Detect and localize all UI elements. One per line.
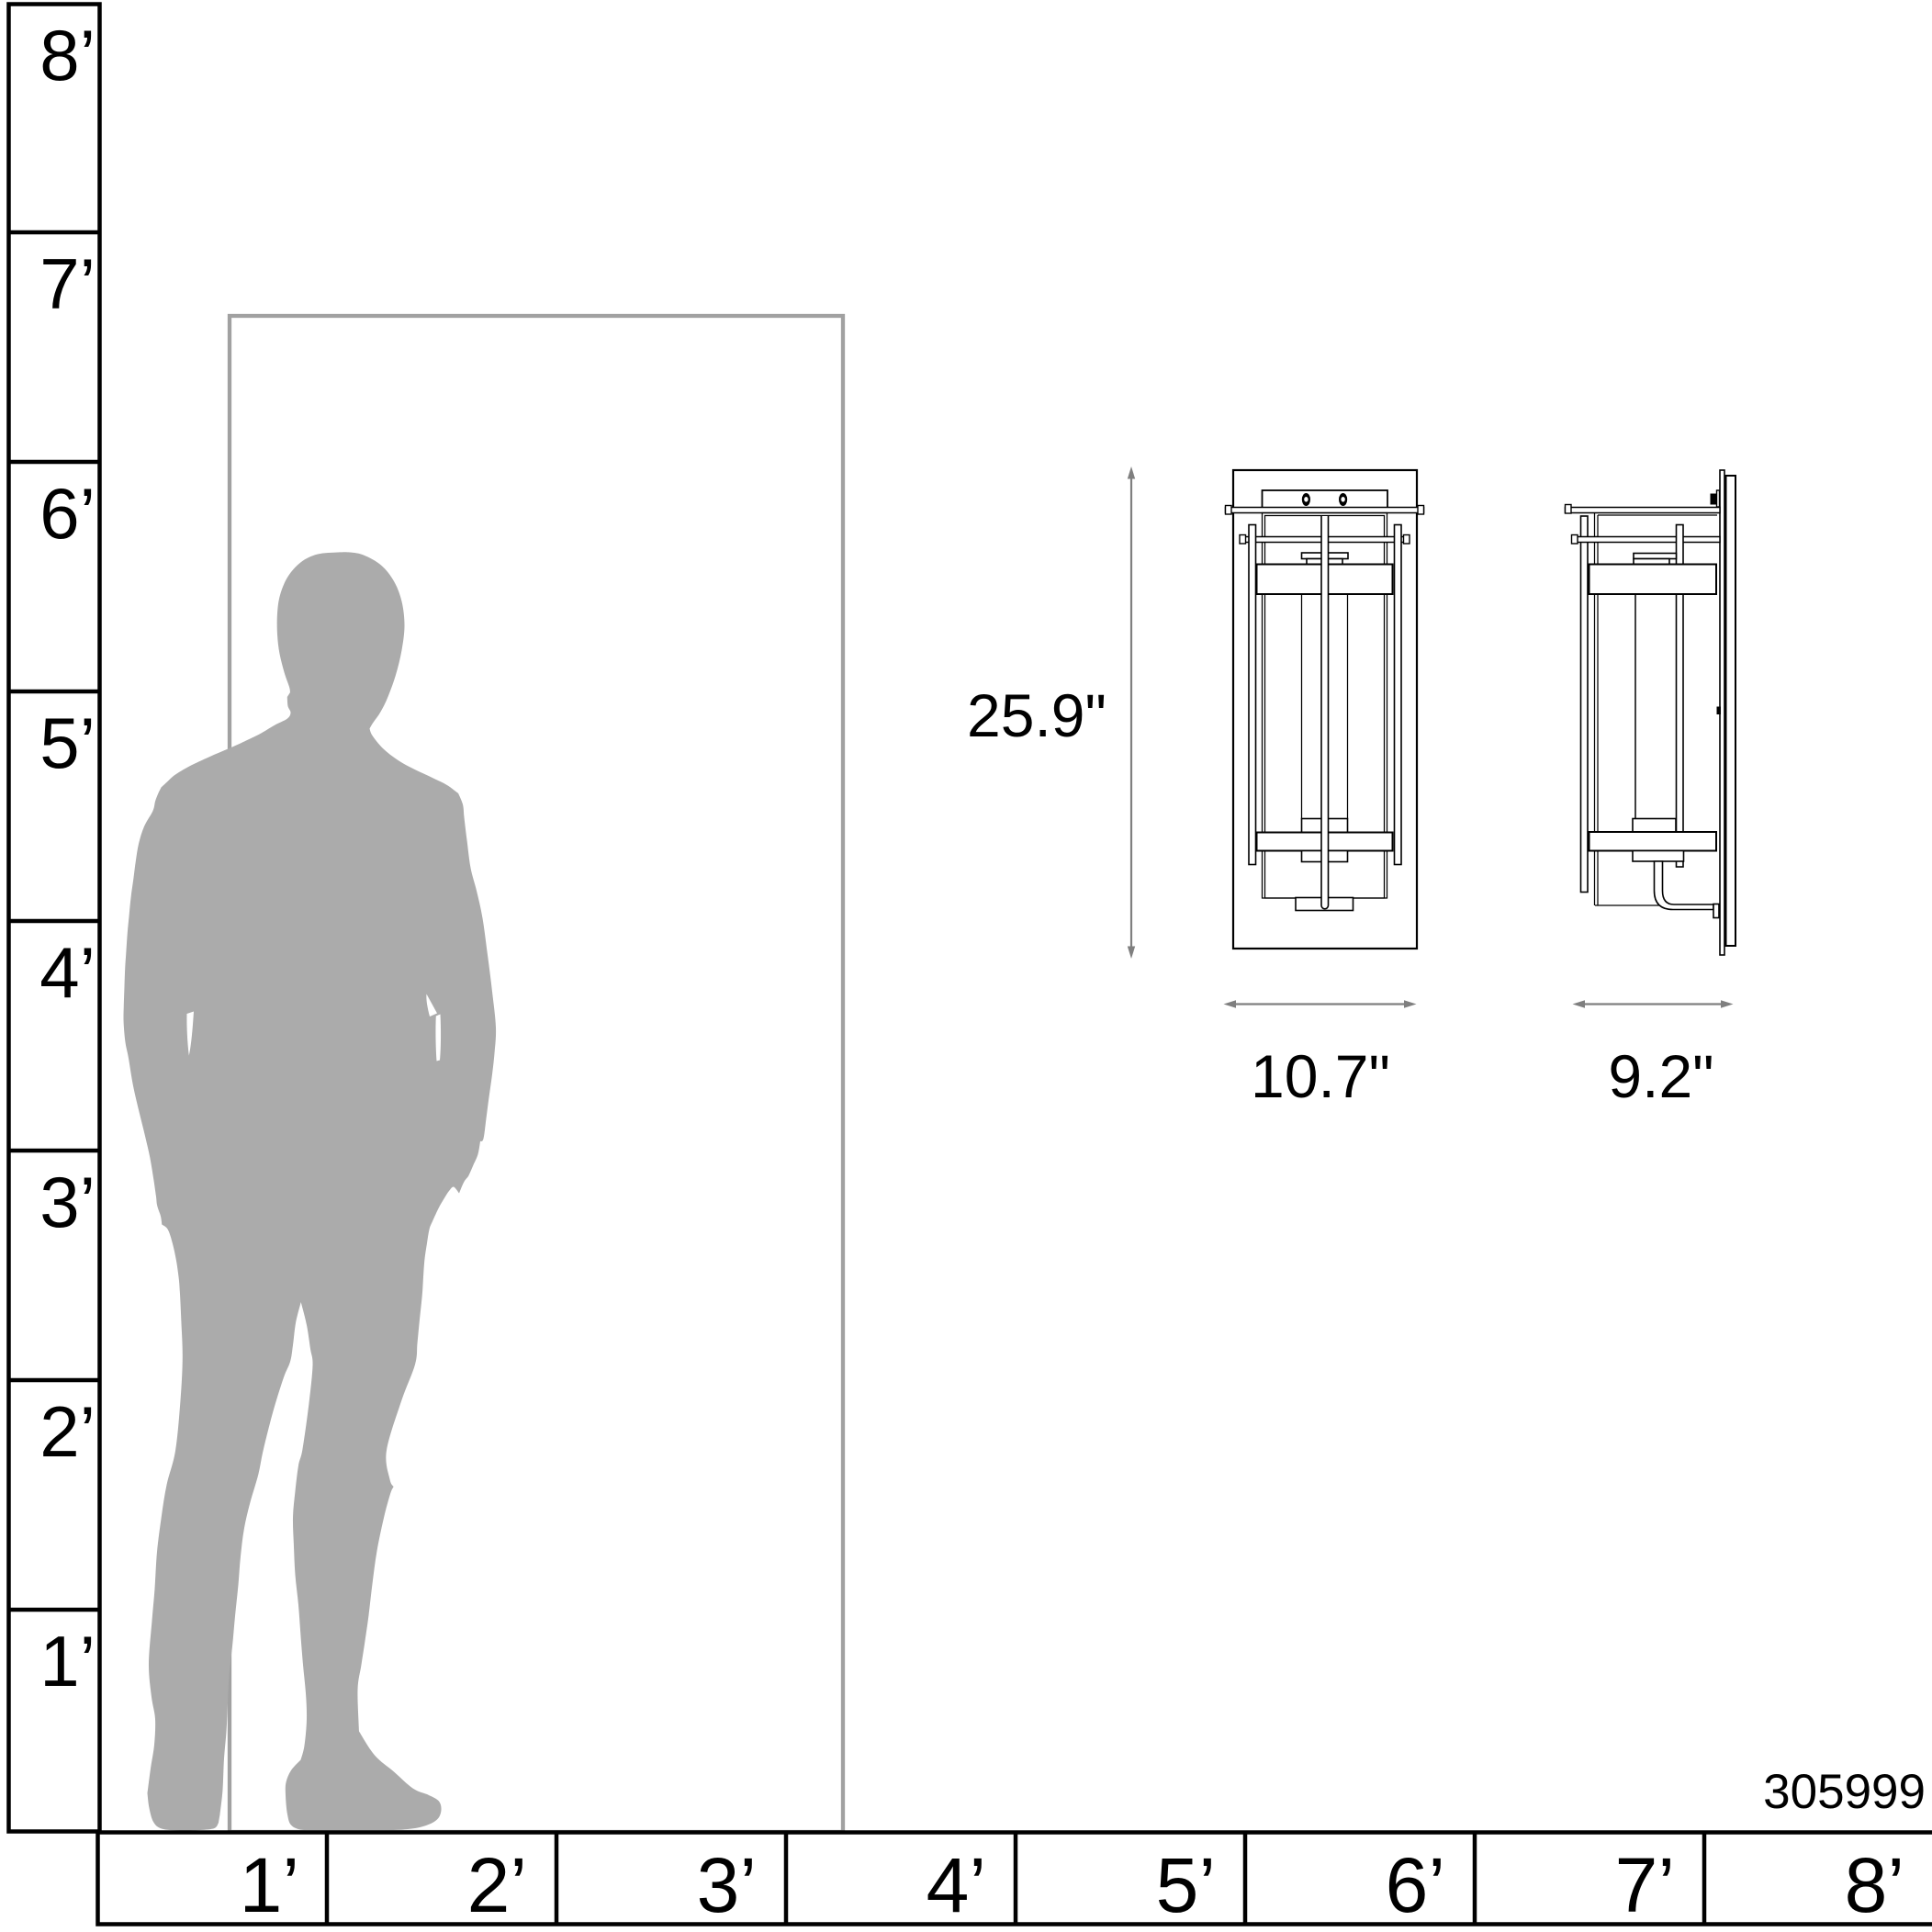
- svg-text:8’: 8’: [1845, 1842, 1904, 1928]
- svg-text:4’: 4’: [39, 932, 95, 1013]
- svg-text:305999: 305999: [1763, 1765, 1926, 1819]
- svg-text:2’: 2’: [39, 1391, 95, 1472]
- svg-text:4’: 4’: [927, 1842, 986, 1928]
- svg-text:10.7": 10.7": [1251, 1042, 1390, 1110]
- svg-text:3’: 3’: [697, 1842, 757, 1928]
- svg-text:8’: 8’: [39, 15, 95, 95]
- svg-text:2’: 2’: [467, 1842, 527, 1928]
- svg-text:25.9": 25.9": [967, 681, 1106, 749]
- svg-text:5’: 5’: [1156, 1842, 1216, 1928]
- svg-text:7’: 7’: [39, 243, 95, 324]
- svg-text:5’: 5’: [39, 702, 95, 783]
- svg-text:1’: 1’: [240, 1842, 299, 1928]
- svg-text:6’: 6’: [1386, 1842, 1445, 1928]
- svg-text:1’: 1’: [39, 1621, 95, 1702]
- svg-text:6’: 6’: [39, 473, 95, 554]
- svg-text:3’: 3’: [39, 1162, 95, 1242]
- svg-text:9.2": 9.2": [1608, 1042, 1713, 1110]
- svg-text:7’: 7’: [1615, 1842, 1675, 1928]
